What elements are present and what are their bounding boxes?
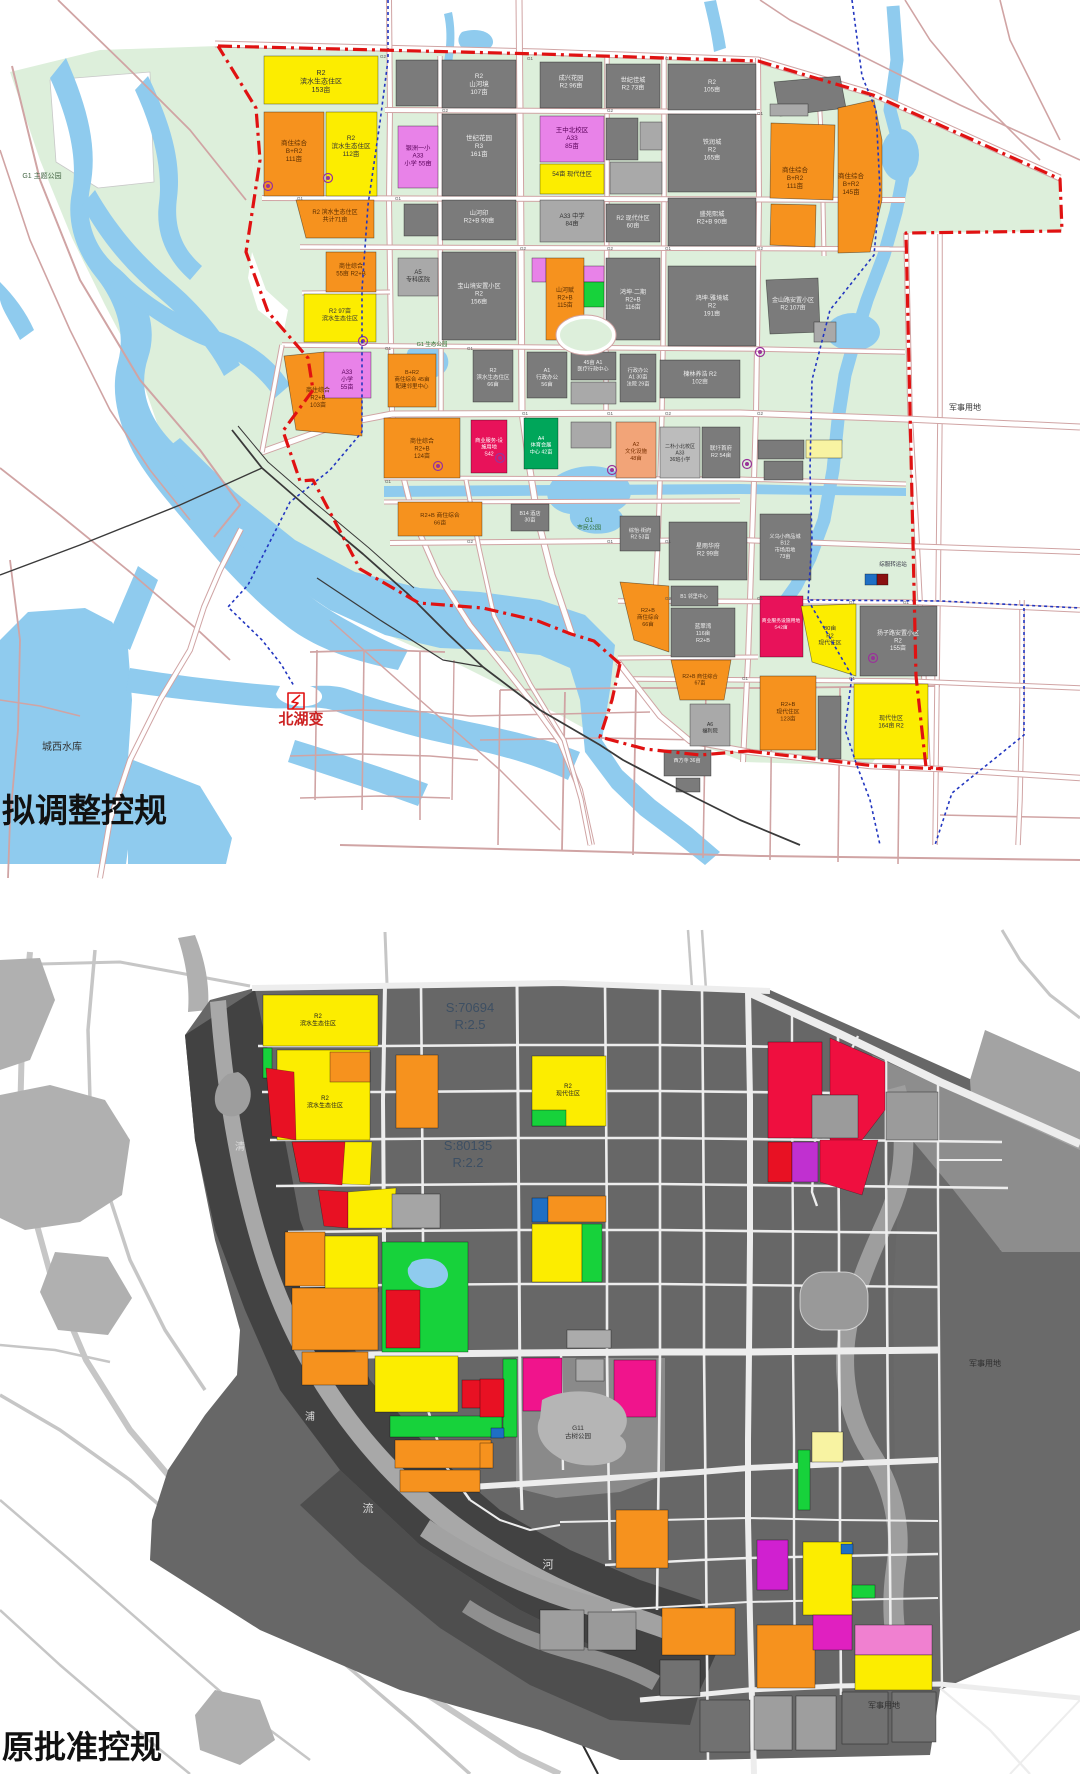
svg-text:G1: G1	[385, 346, 392, 351]
svg-text:G2: G2	[757, 246, 764, 251]
svg-text:军事用地: 军事用地	[969, 1358, 1001, 1368]
svg-text:G1 生态公园: G1 生态公园	[417, 340, 448, 348]
svg-text:G2: G2	[665, 596, 672, 601]
svg-text:G2: G2	[607, 108, 614, 113]
svg-text:综服转运站: 综服转运站	[879, 560, 907, 568]
svg-text:G1: G1	[607, 539, 614, 544]
svg-text:军事用地: 军事用地	[949, 402, 981, 412]
svg-text:G1: G1	[742, 676, 749, 681]
svg-text:G1: G1	[467, 346, 474, 351]
svg-text:G2: G2	[607, 246, 614, 251]
svg-text:浦: 浦	[305, 1410, 315, 1423]
svg-text:成兴花园R2 96亩: 成兴花园R2 96亩	[559, 74, 584, 90]
svg-text:清: 清	[235, 1140, 245, 1153]
svg-text:现代住区164亩 R2: 现代住区164亩 R2	[878, 714, 904, 730]
svg-text:G1: G1	[522, 411, 529, 416]
svg-text:G1: G1	[395, 196, 402, 201]
svg-text:G1: G1	[665, 539, 672, 544]
svg-text:G2: G2	[467, 539, 474, 544]
svg-text:拟调整控规: 拟调整控规	[2, 792, 167, 829]
svg-text:流: 流	[363, 1501, 374, 1515]
svg-text:原批准控规: 原批准控规	[2, 1729, 162, 1765]
svg-text:G2: G2	[442, 108, 449, 113]
svg-text:G1 主题公园: G1 主题公园	[22, 171, 61, 180]
svg-text:西方寺 36亩: 西方寺 36亩	[674, 757, 701, 764]
svg-text:商住综合55亩 R2+B: 商住综合55亩 R2+B	[336, 262, 366, 278]
svg-text:G2: G2	[665, 411, 672, 416]
svg-text:世纪佳城R2 73亩: 世纪佳城R2 73亩	[621, 76, 646, 92]
svg-text:城西水库: 城西水库	[42, 740, 82, 753]
svg-text:G1: G1	[757, 596, 764, 601]
svg-text:G1: G1	[297, 196, 304, 201]
svg-text:盛苑熙城R2+B 90亩: 盛苑熙城R2+B 90亩	[697, 210, 727, 226]
svg-text:综怡·街府R2 53亩: 综怡·街府R2 53亩	[629, 526, 651, 541]
svg-text:G2: G2	[380, 54, 387, 59]
svg-text:G1: G1	[385, 479, 392, 484]
svg-text:蓝翠湾116亩R2+B: 蓝翠湾116亩R2+B	[695, 622, 712, 644]
svg-text:G2: G2	[520, 246, 527, 251]
svg-text:河: 河	[543, 1558, 554, 1571]
svg-text:北湖变: 北湖变	[278, 710, 323, 728]
svg-text:G1: G1	[757, 111, 764, 116]
svg-text:军事用地: 军事用地	[868, 1700, 900, 1710]
svg-text:山河赋R2+B115亩: 山河赋R2+B115亩	[556, 286, 574, 309]
svg-text:行政办公A1 30亩法院 29亩: 行政办公A1 30亩法院 29亩	[627, 366, 650, 387]
svg-text:G1: G1	[527, 56, 534, 61]
svg-text:54亩 现代住区: 54亩 现代住区	[552, 170, 592, 178]
svg-text:联圩首府R2 54亩: 联圩首府R2 54亩	[710, 444, 733, 459]
svg-text:星雨华府R2 99亩: 星雨华府R2 99亩	[696, 542, 720, 558]
svg-text:G1: G1	[607, 411, 614, 416]
svg-text:G1: G1	[665, 246, 672, 251]
svg-text:G2: G2	[757, 411, 764, 416]
svg-text:A33小学55亩: A33小学55亩	[341, 370, 354, 391]
svg-text:B1 邻里中心: B1 邻里中心	[680, 593, 708, 600]
